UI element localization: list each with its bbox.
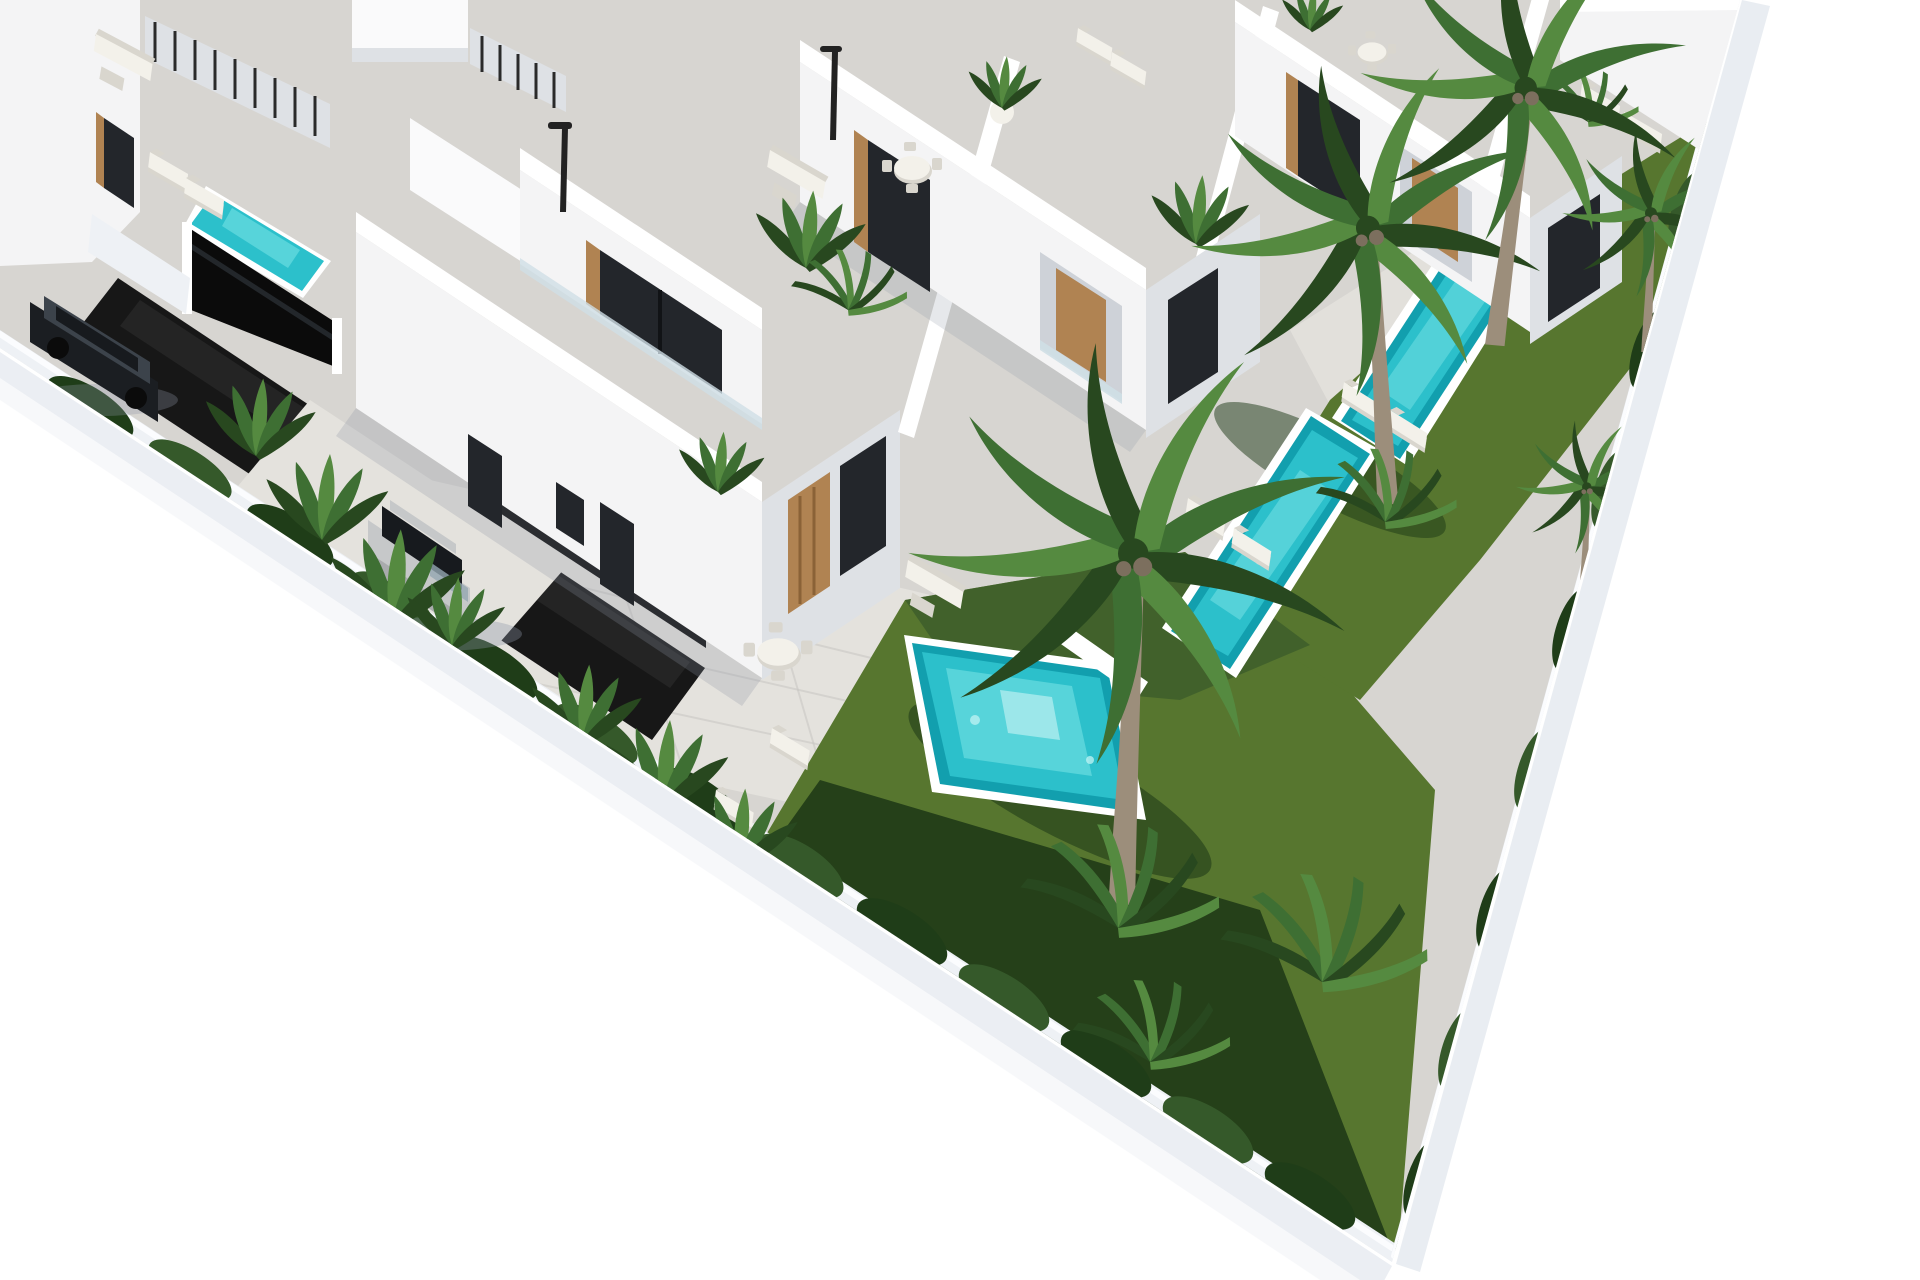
property-scene <box>0 0 1758 1268</box>
villa-development-render: Aerial 3D architectural rendering of a g… <box>0 0 1920 1280</box>
render-canvas: Aerial 3D architectural rendering of a g… <box>0 0 1920 1280</box>
